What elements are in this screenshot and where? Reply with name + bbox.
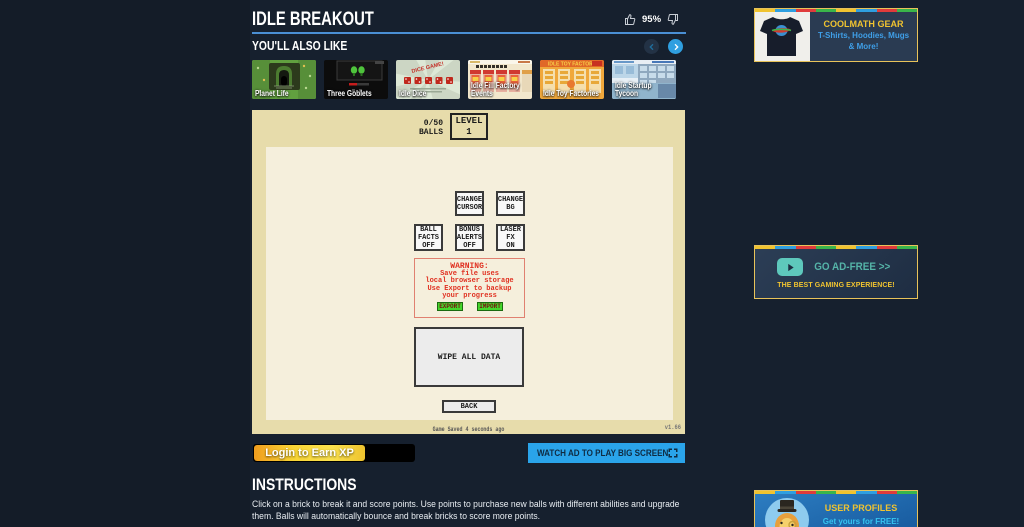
- svg-text:DICE GAME!: DICE GAME!: [411, 61, 445, 75]
- svg-text:IDLE TOY FACTORY: IDLE TOY FACTORY: [548, 62, 597, 68]
